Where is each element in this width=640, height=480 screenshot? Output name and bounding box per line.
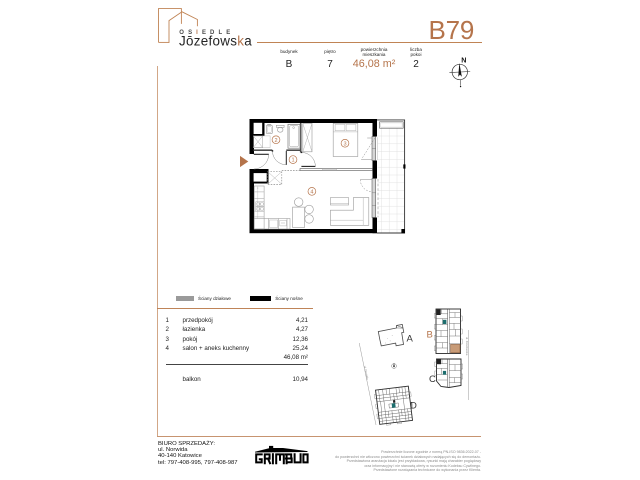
svg-text:3: 3 [343,141,346,147]
svg-text:ul. Norwida: ul. Norwida [363,365,370,380]
svg-text:D: D [410,401,417,412]
svg-text:N: N [461,55,466,64]
svg-text:4: 4 [310,190,313,196]
svg-text:2: 2 [274,138,277,144]
svg-text:Jōzefowska: Jōzefowska [179,33,252,48]
svg-text:ul. Józefowska: ul. Józefowska [465,337,469,356]
svg-text:A: A [407,334,414,345]
svg-text:B: B [427,330,433,341]
svg-text:1: 1 [291,158,294,164]
svg-text:C: C [429,374,436,385]
